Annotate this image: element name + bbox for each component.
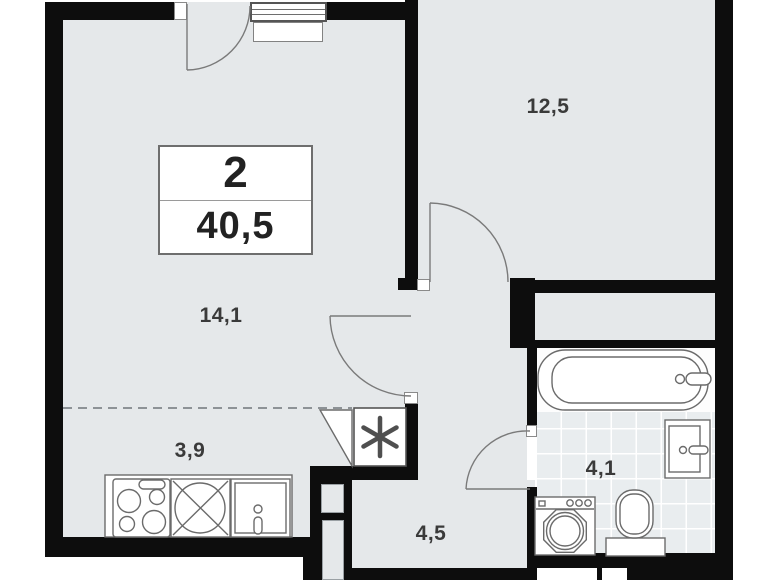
apartment-info-box: 2 40,5: [158, 145, 313, 255]
doorway-balcony: [187, 2, 250, 20]
room-label-living: 14,1: [200, 304, 243, 328]
room-label-hallway: 4,5: [416, 522, 447, 546]
wall-hall-bottom: [346, 568, 535, 580]
jamb-bedroom-door: [417, 279, 430, 291]
wall-kitchen-bottom: [45, 537, 322, 557]
window-pane-line: [252, 14, 325, 15]
wall-bath-top: [533, 340, 715, 348]
wall-outer-right: [715, 0, 733, 580]
room-label-bathroom: 4,1: [586, 457, 617, 481]
jamb-bath-door: [526, 425, 537, 437]
total-area: 40,5: [160, 201, 311, 254]
wall-outer-top-a: [45, 2, 175, 20]
wall-niche-left: [510, 278, 535, 348]
window-pane-line: [252, 9, 325, 10]
shaft-lower: [322, 520, 344, 580]
shaft-upper: [321, 484, 344, 513]
wall-foot-living: [398, 278, 405, 290]
wall-living-bedroom: [405, 0, 418, 290]
room-label-kitchen: 3,9: [175, 439, 206, 463]
wall-hall-kitchen: [405, 404, 418, 466]
doorway-living-hall: [405, 290, 418, 394]
floor-plan: 2 40,5 12,5 14,1 3,9 4,5 4,1: [0, 0, 780, 580]
bathroom-tile-floor: [537, 412, 715, 553]
room-label-bedroom: 12,5: [527, 95, 570, 119]
jamb-living-door: [404, 392, 418, 404]
window: [250, 2, 327, 22]
wall-below-kitchen: [303, 557, 322, 580]
bottom-notch-b: [602, 568, 627, 580]
rooms-count: 2: [160, 147, 311, 201]
wall-outer-left: [45, 2, 63, 557]
wall-bath-left-upper: [527, 348, 537, 425]
window-sill: [253, 22, 323, 42]
jamb-balcony-door: [174, 2, 187, 20]
bottom-notch-a: [537, 568, 597, 580]
wall-under-bedroom: [510, 280, 715, 293]
niche-floor: [535, 293, 715, 340]
living-room-floor: [63, 18, 405, 537]
bathroom-upper-floor: [537, 348, 715, 412]
bedroom-floor: [418, 0, 715, 282]
wall-bath-left-lower: [527, 487, 537, 557]
wall-under-fridge: [310, 466, 418, 480]
